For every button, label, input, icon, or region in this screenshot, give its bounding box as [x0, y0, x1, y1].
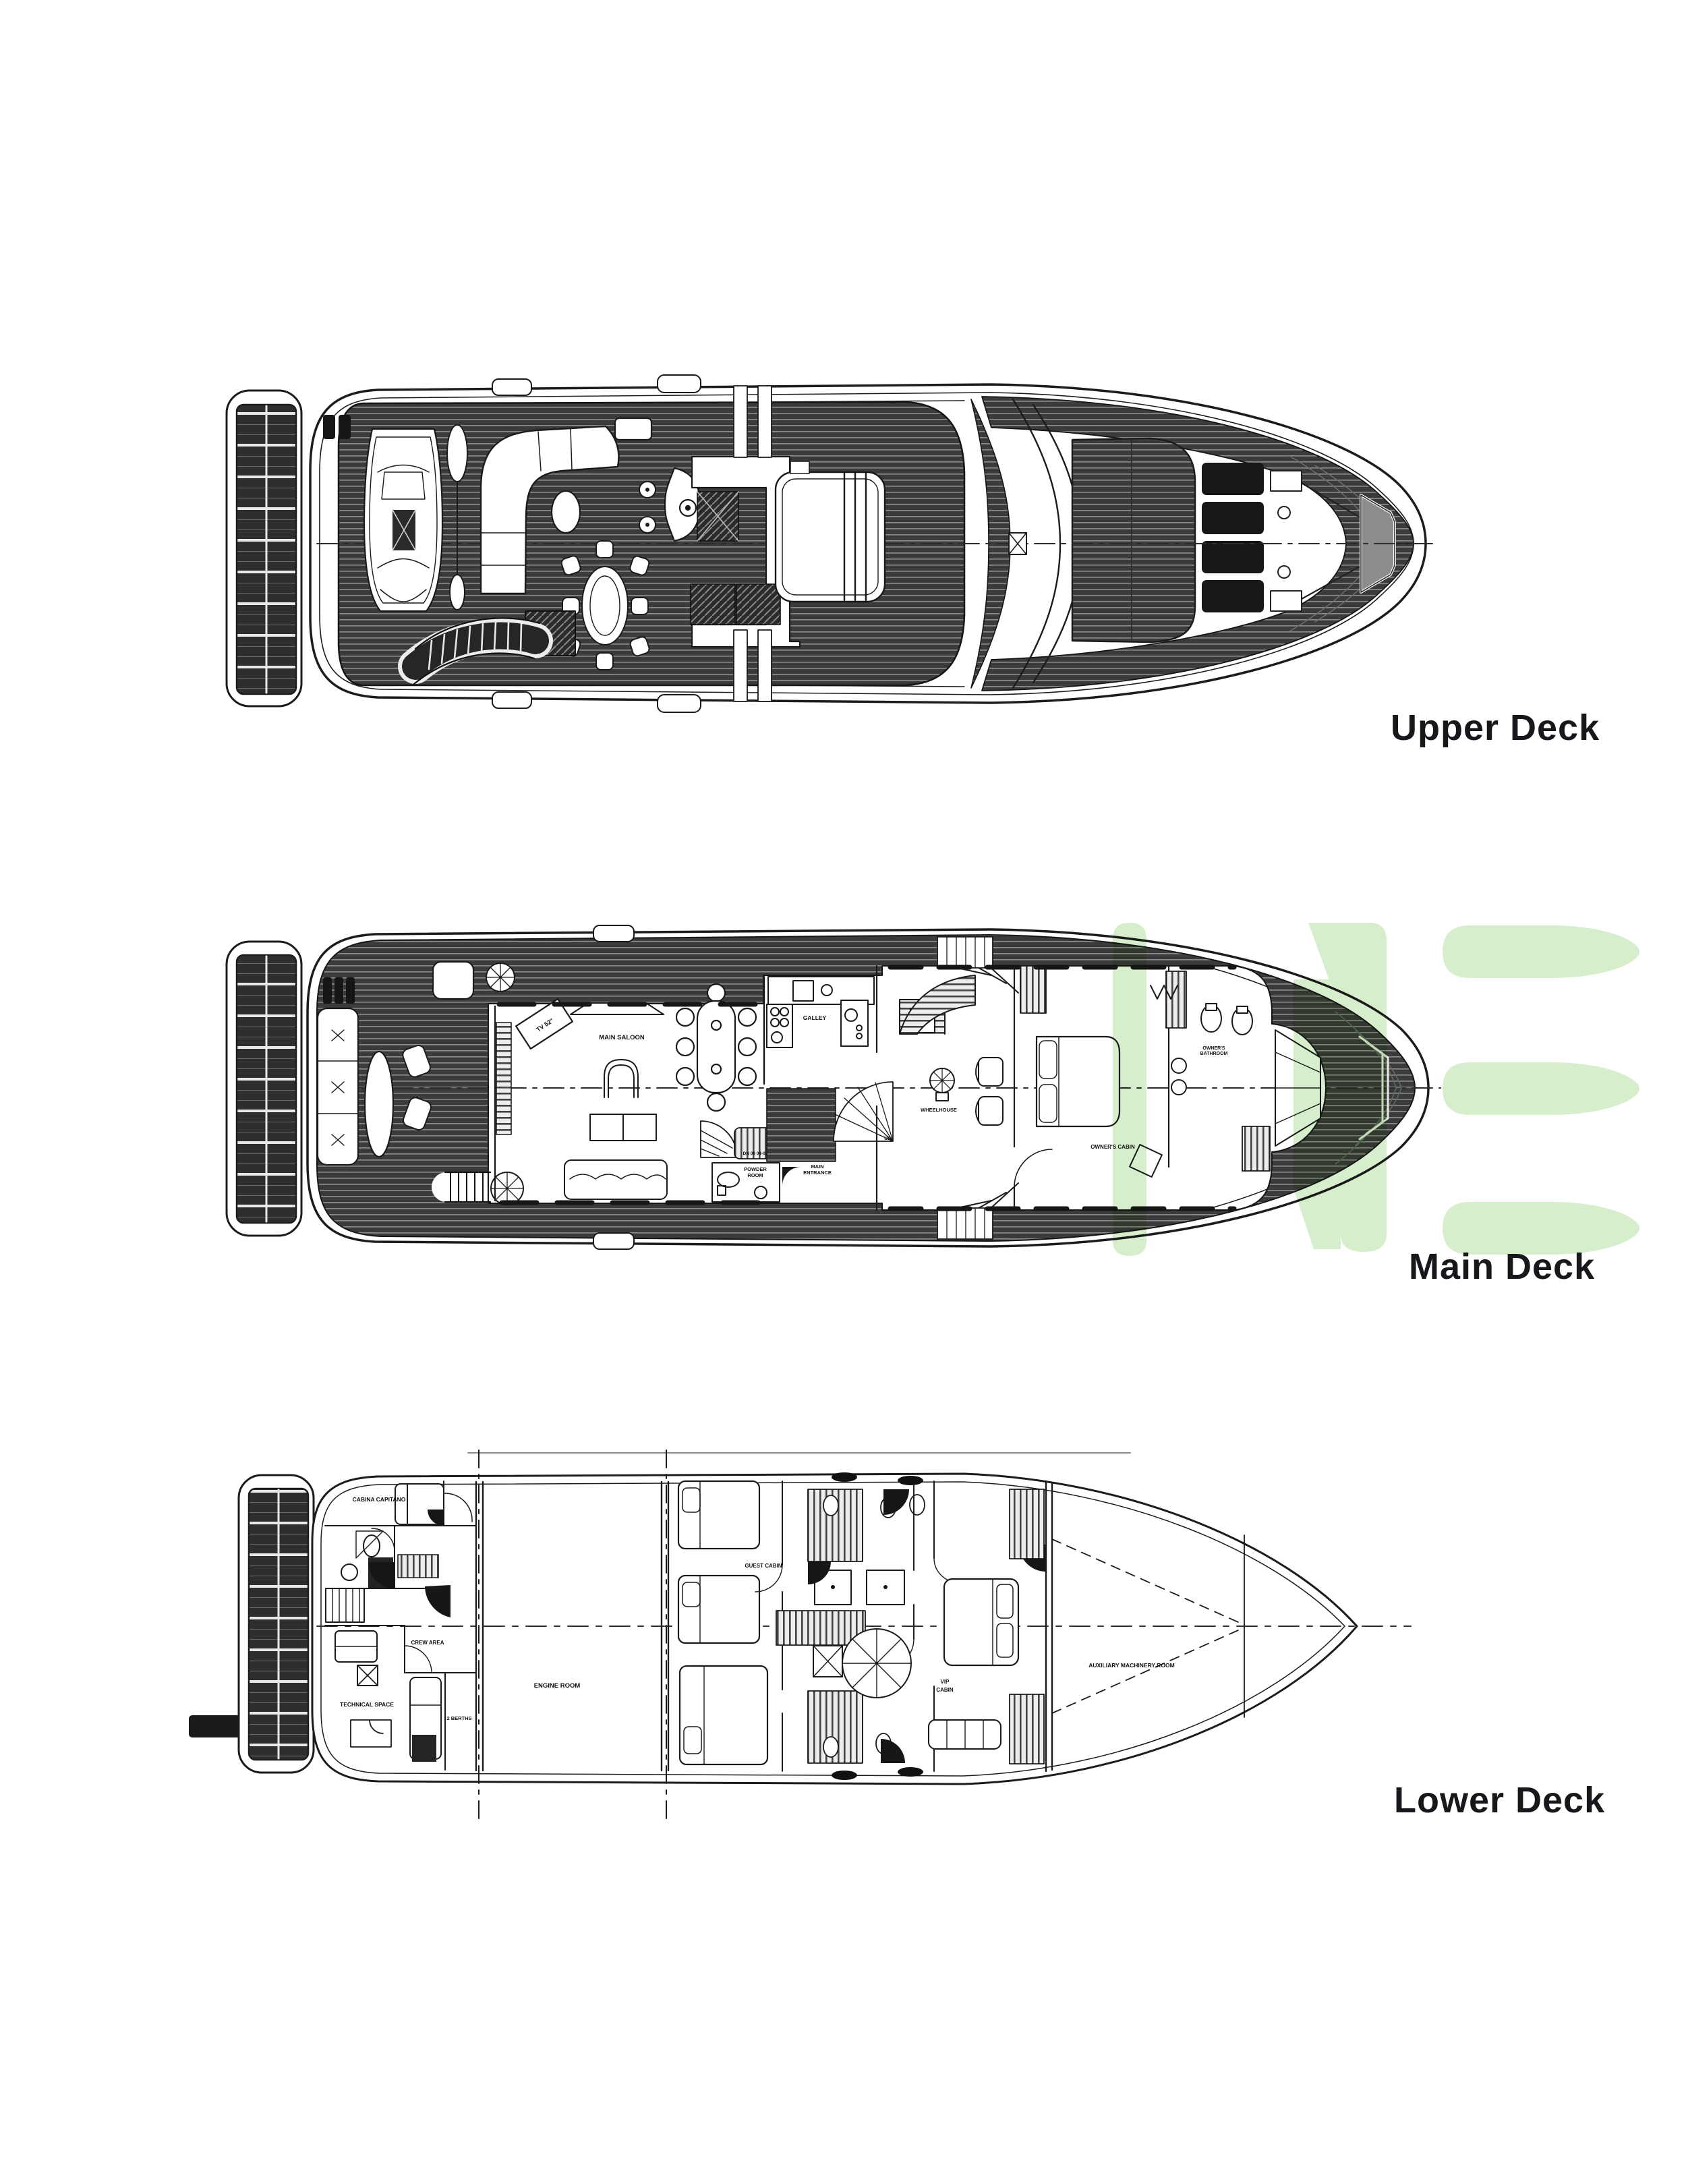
- svg-text:BATHROOM: BATHROOM: [1200, 1052, 1228, 1056]
- svg-text:Lower Deck: Lower Deck: [1394, 1780, 1605, 1820]
- svg-text:POWDER: POWDER: [744, 1166, 767, 1172]
- svg-text:OWNER'S: OWNER'S: [1202, 1046, 1225, 1051]
- svg-text:UP: UP: [884, 1137, 891, 1141]
- svg-text:AUXILIARY MACHINERY ROOM: AUXILIARY MACHINERY ROOM: [1088, 1662, 1175, 1669]
- svg-text:MAIN SALOON: MAIN SALOON: [599, 1034, 645, 1041]
- svg-text:WHEELHOUSE: WHEELHOUSE: [921, 1107, 957, 1113]
- svg-text:ENTRANCE: ENTRANCE: [803, 1170, 832, 1176]
- svg-text:CABIN: CABIN: [936, 1687, 954, 1693]
- svg-text:CREW AREA: CREW AREA: [411, 1640, 444, 1646]
- svg-text:ENGINE ROOM: ENGINE ROOM: [534, 1682, 581, 1690]
- svg-text:MAIN: MAIN: [811, 1163, 823, 1170]
- svg-text:VIP: VIP: [941, 1679, 950, 1685]
- svg-text:TECHNICAL SPACE: TECHNICAL SPACE: [340, 1701, 394, 1708]
- svg-text:CABINA CAPITANO: CABINA CAPITANO: [353, 1496, 406, 1503]
- svg-text:Upper Deck: Upper Deck: [1391, 708, 1600, 748]
- svg-text:GUEST CABIN: GUEST CABIN: [745, 1563, 782, 1569]
- svg-text:ROOM: ROOM: [747, 1172, 763, 1178]
- svg-text:2 BERTHS: 2 BERTHS: [446, 1715, 471, 1721]
- svg-text:Main Deck: Main Deck: [1409, 1246, 1595, 1287]
- svg-text:GALLEY: GALLEY: [803, 1014, 827, 1021]
